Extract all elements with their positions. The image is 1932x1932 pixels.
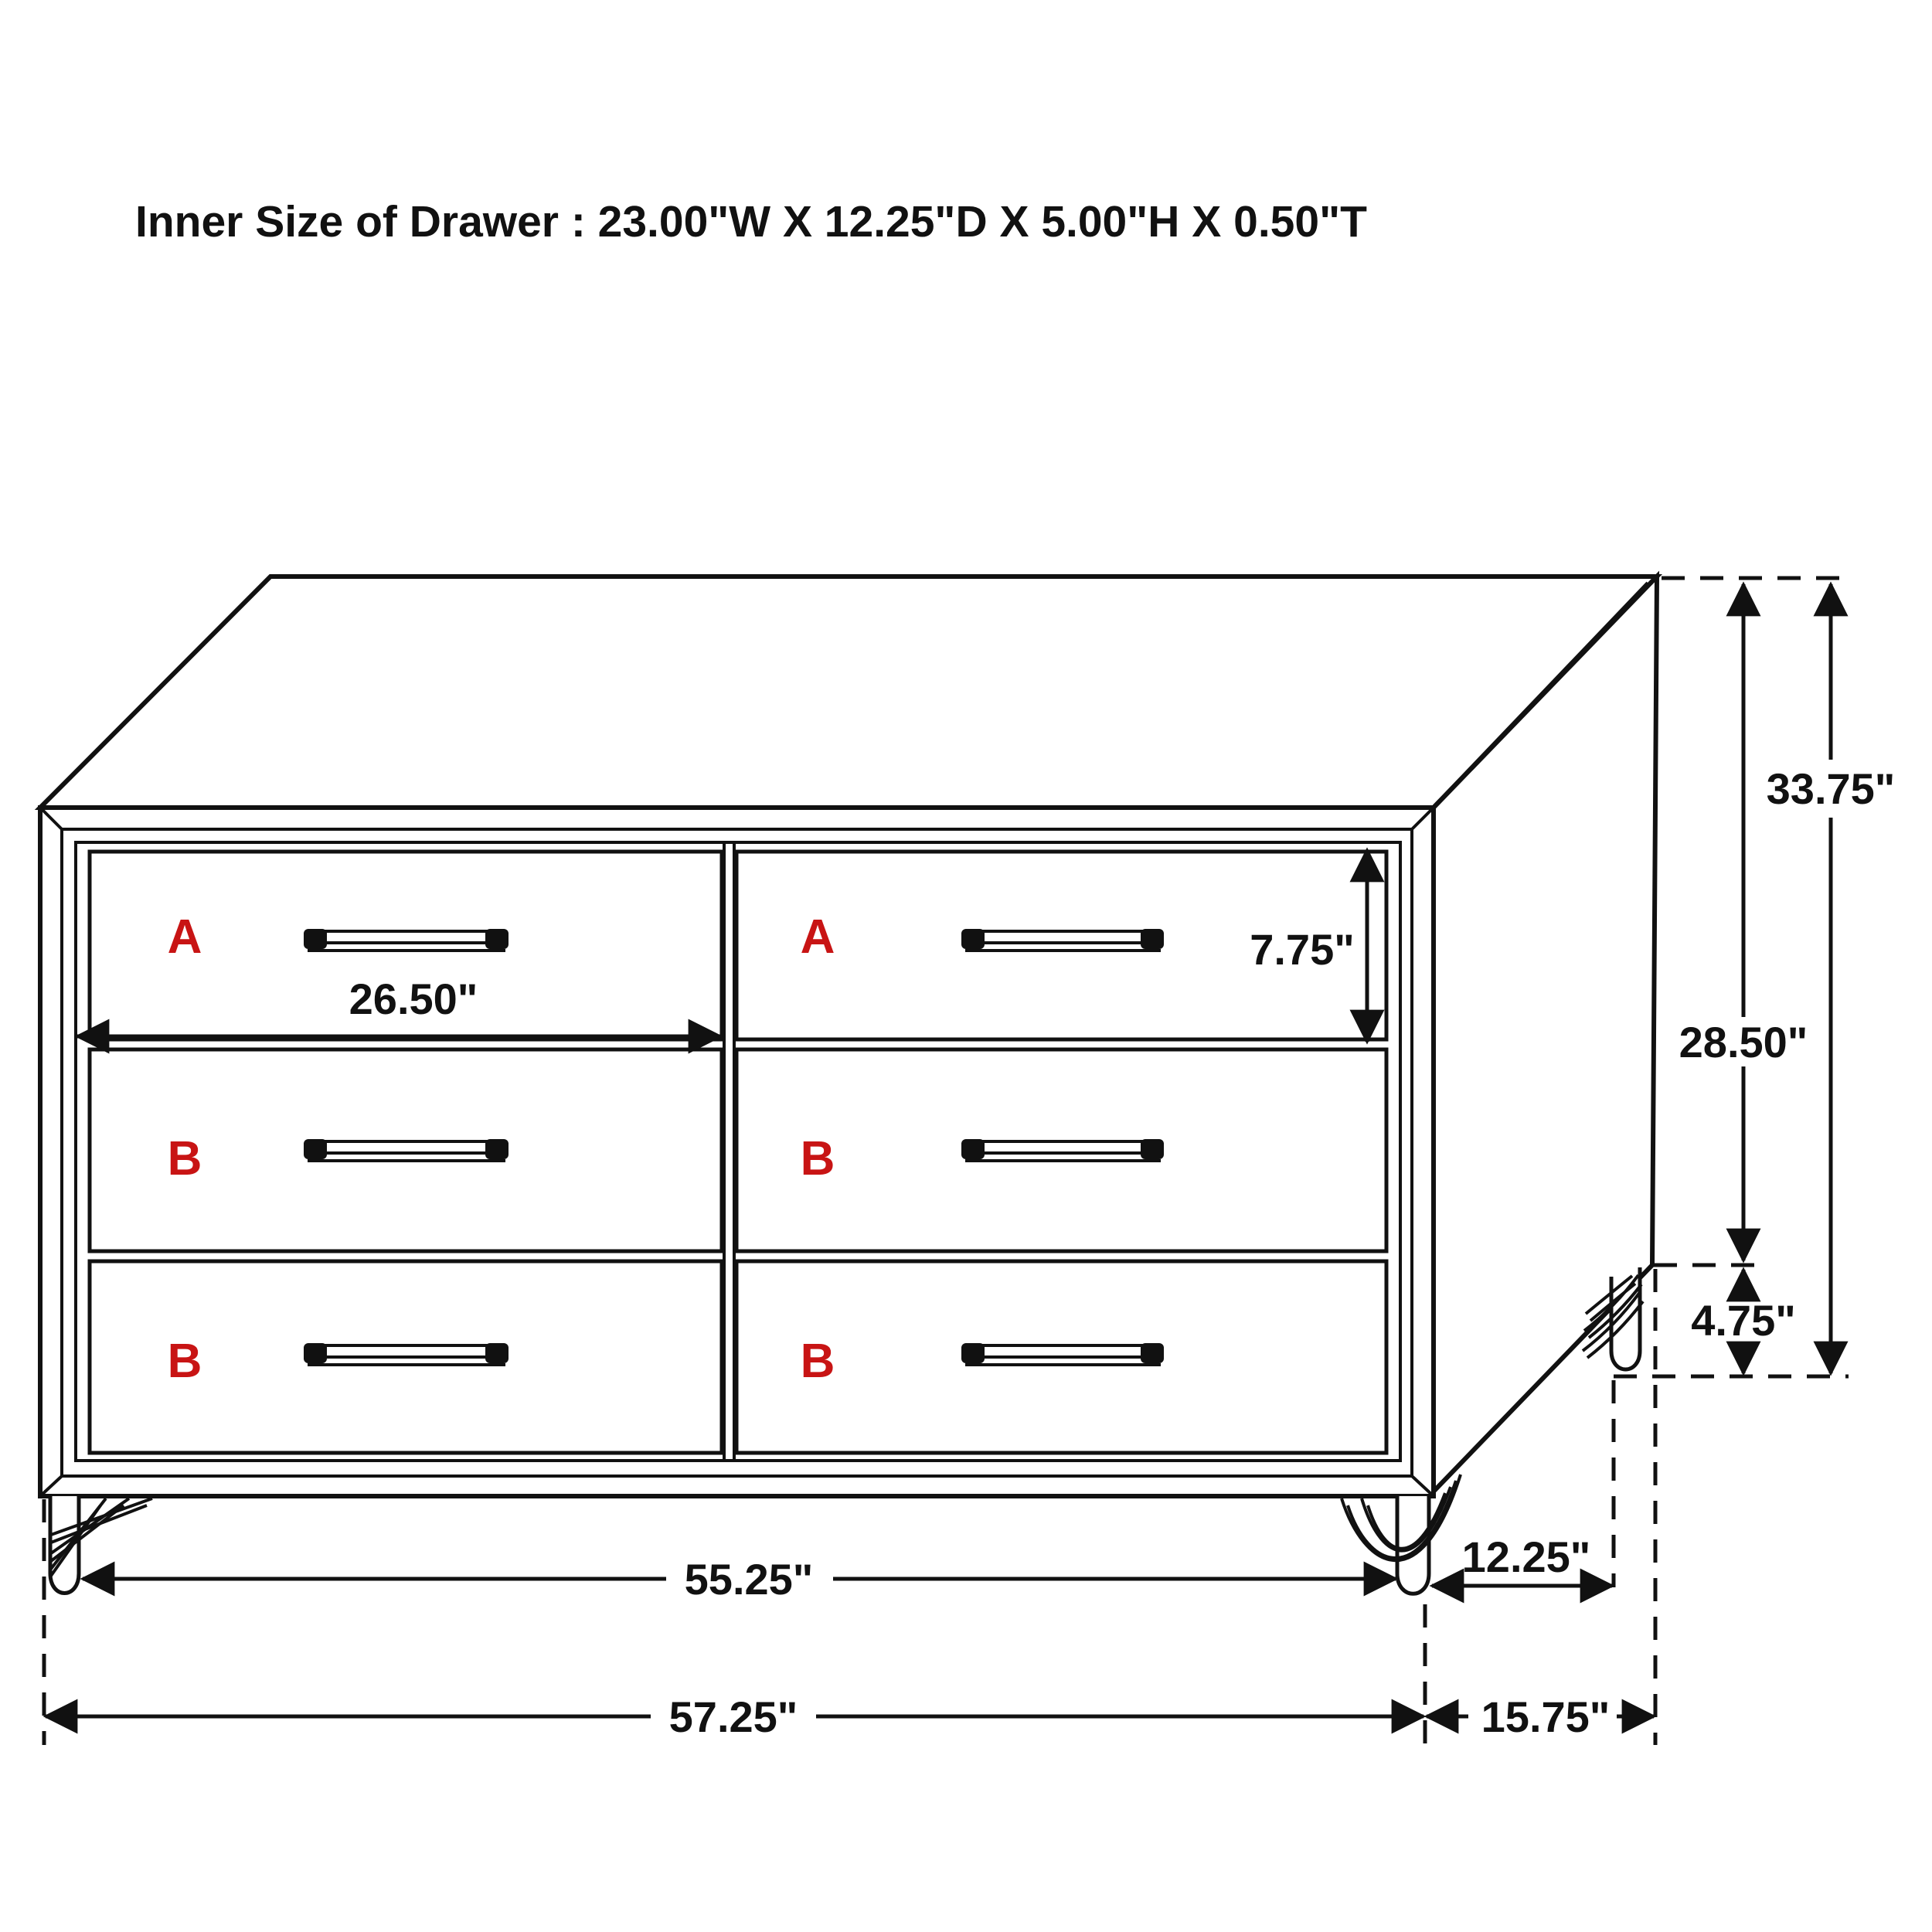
dim-overall-width: 57.25" <box>46 1692 1423 1741</box>
drawer-grid: A A B B B B <box>90 852 1386 1453</box>
dim-label: 26.50" <box>349 975 478 1023</box>
drawer-label: A <box>801 910 835 964</box>
dresser-dimension-diagram: Inner Size of Drawer : 23.00"W X 12.25"D… <box>0 0 1932 1932</box>
drawer-label: B <box>168 1132 202 1185</box>
dim-label: 33.75" <box>1767 764 1896 813</box>
dim-label: 57.25" <box>669 1692 798 1741</box>
dim-depth-between-legs: 12.25" <box>1432 1532 1612 1586</box>
dim-width-between-legs: 55.25" <box>83 1555 1396 1604</box>
dim-leg-height: 4.75" <box>1691 1270 1796 1373</box>
dim-label: 7.75" <box>1250 925 1355 974</box>
dim-label: 28.50" <box>1679 1018 1808 1066</box>
drawer-label: B <box>801 1335 835 1388</box>
dim-case-height: 28.50" <box>1679 584 1808 1260</box>
dim-label: 55.25" <box>685 1555 814 1604</box>
drawer-label: A <box>168 910 202 964</box>
dim-label: 4.75" <box>1691 1296 1796 1345</box>
dim-overall-depth: 15.75" <box>1427 1692 1654 1741</box>
page-title: Inner Size of Drawer : 23.00"W X 12.25"D… <box>135 197 1367 247</box>
dim-label: 12.25" <box>1462 1532 1591 1581</box>
drawer-label: B <box>168 1335 202 1388</box>
drawer-label: B <box>801 1132 835 1185</box>
dresser-top-surface <box>40 577 1657 808</box>
dim-overall-height: 33.75" <box>1767 584 1896 1373</box>
diagram-canvas: Inner Size of Drawer : 23.00"W X 12.25"D… <box>0 0 1932 1932</box>
dim-label: 15.75" <box>1481 1692 1611 1741</box>
